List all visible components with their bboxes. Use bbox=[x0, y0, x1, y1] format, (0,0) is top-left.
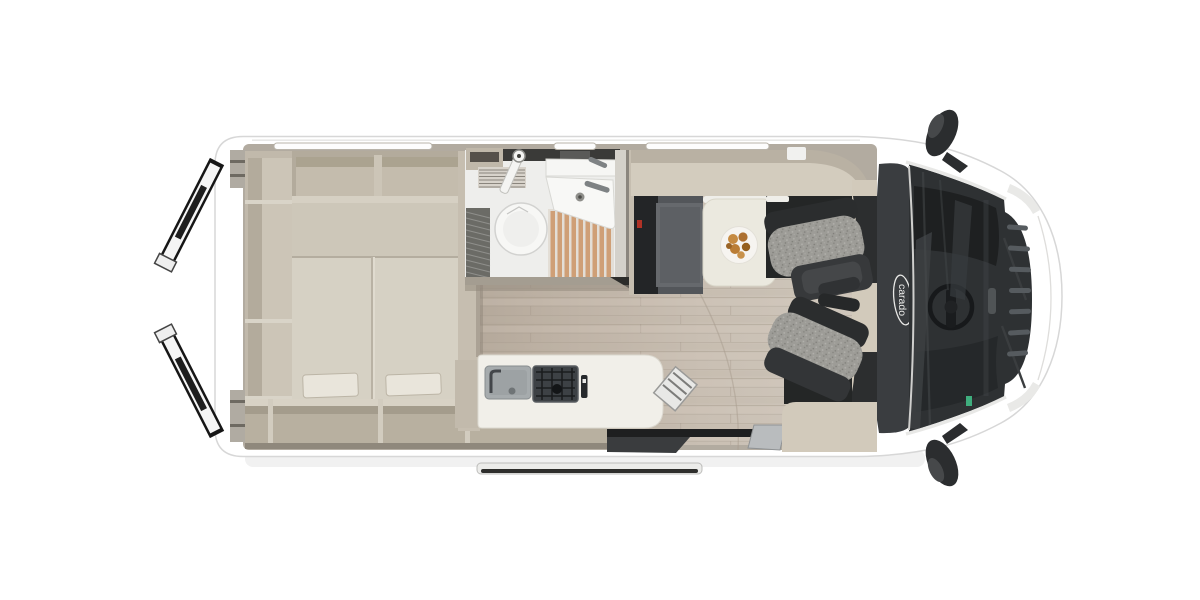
svg-text:carado: carado bbox=[896, 284, 908, 316]
